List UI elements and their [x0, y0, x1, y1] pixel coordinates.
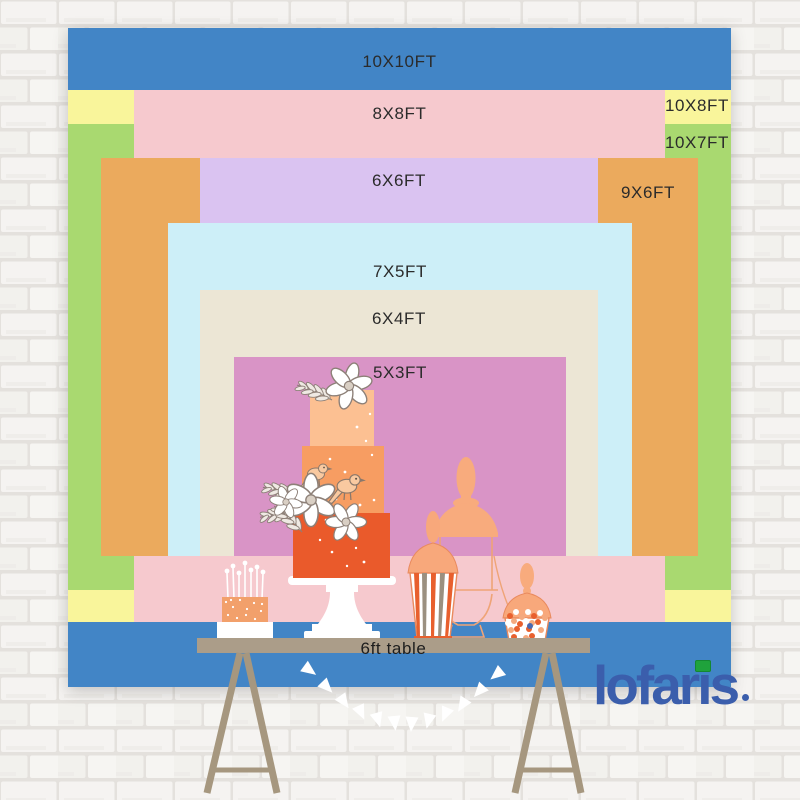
logo-text-s: s: [709, 654, 737, 716]
size-label-9x6: 9X6FT: [598, 183, 698, 203]
logo-text-lofar: lofar: [593, 654, 697, 716]
lofaris-logo: lofaris: [593, 658, 749, 713]
registered-mark-dot: [742, 694, 749, 701]
size-label-6x6: 6X6FT: [200, 171, 598, 191]
size-label-5x3: 5X3FT: [234, 363, 566, 383]
table-size-label: 6ft table: [197, 639, 590, 659]
size-label-6x4: 6X4FT: [200, 309, 598, 329]
size-label-8x8: 8X8FT: [134, 104, 665, 124]
size-label-10x8: 10X8FT: [663, 96, 731, 116]
size-label-10x10: 10X10FT: [68, 52, 731, 72]
logo-letter-i: i: [697, 658, 709, 713]
size-label-7x5: 7X5FT: [168, 262, 632, 282]
size-rect-5x3: [234, 357, 566, 556]
size-label-10x7: 10X7FT: [663, 133, 731, 153]
backdrop-size-chart: 10X10FT 8X8FT 10X8FT 10X7FT 6X6FT 9X6FT …: [0, 0, 800, 800]
logo-green-dot-icon: [695, 660, 711, 672]
